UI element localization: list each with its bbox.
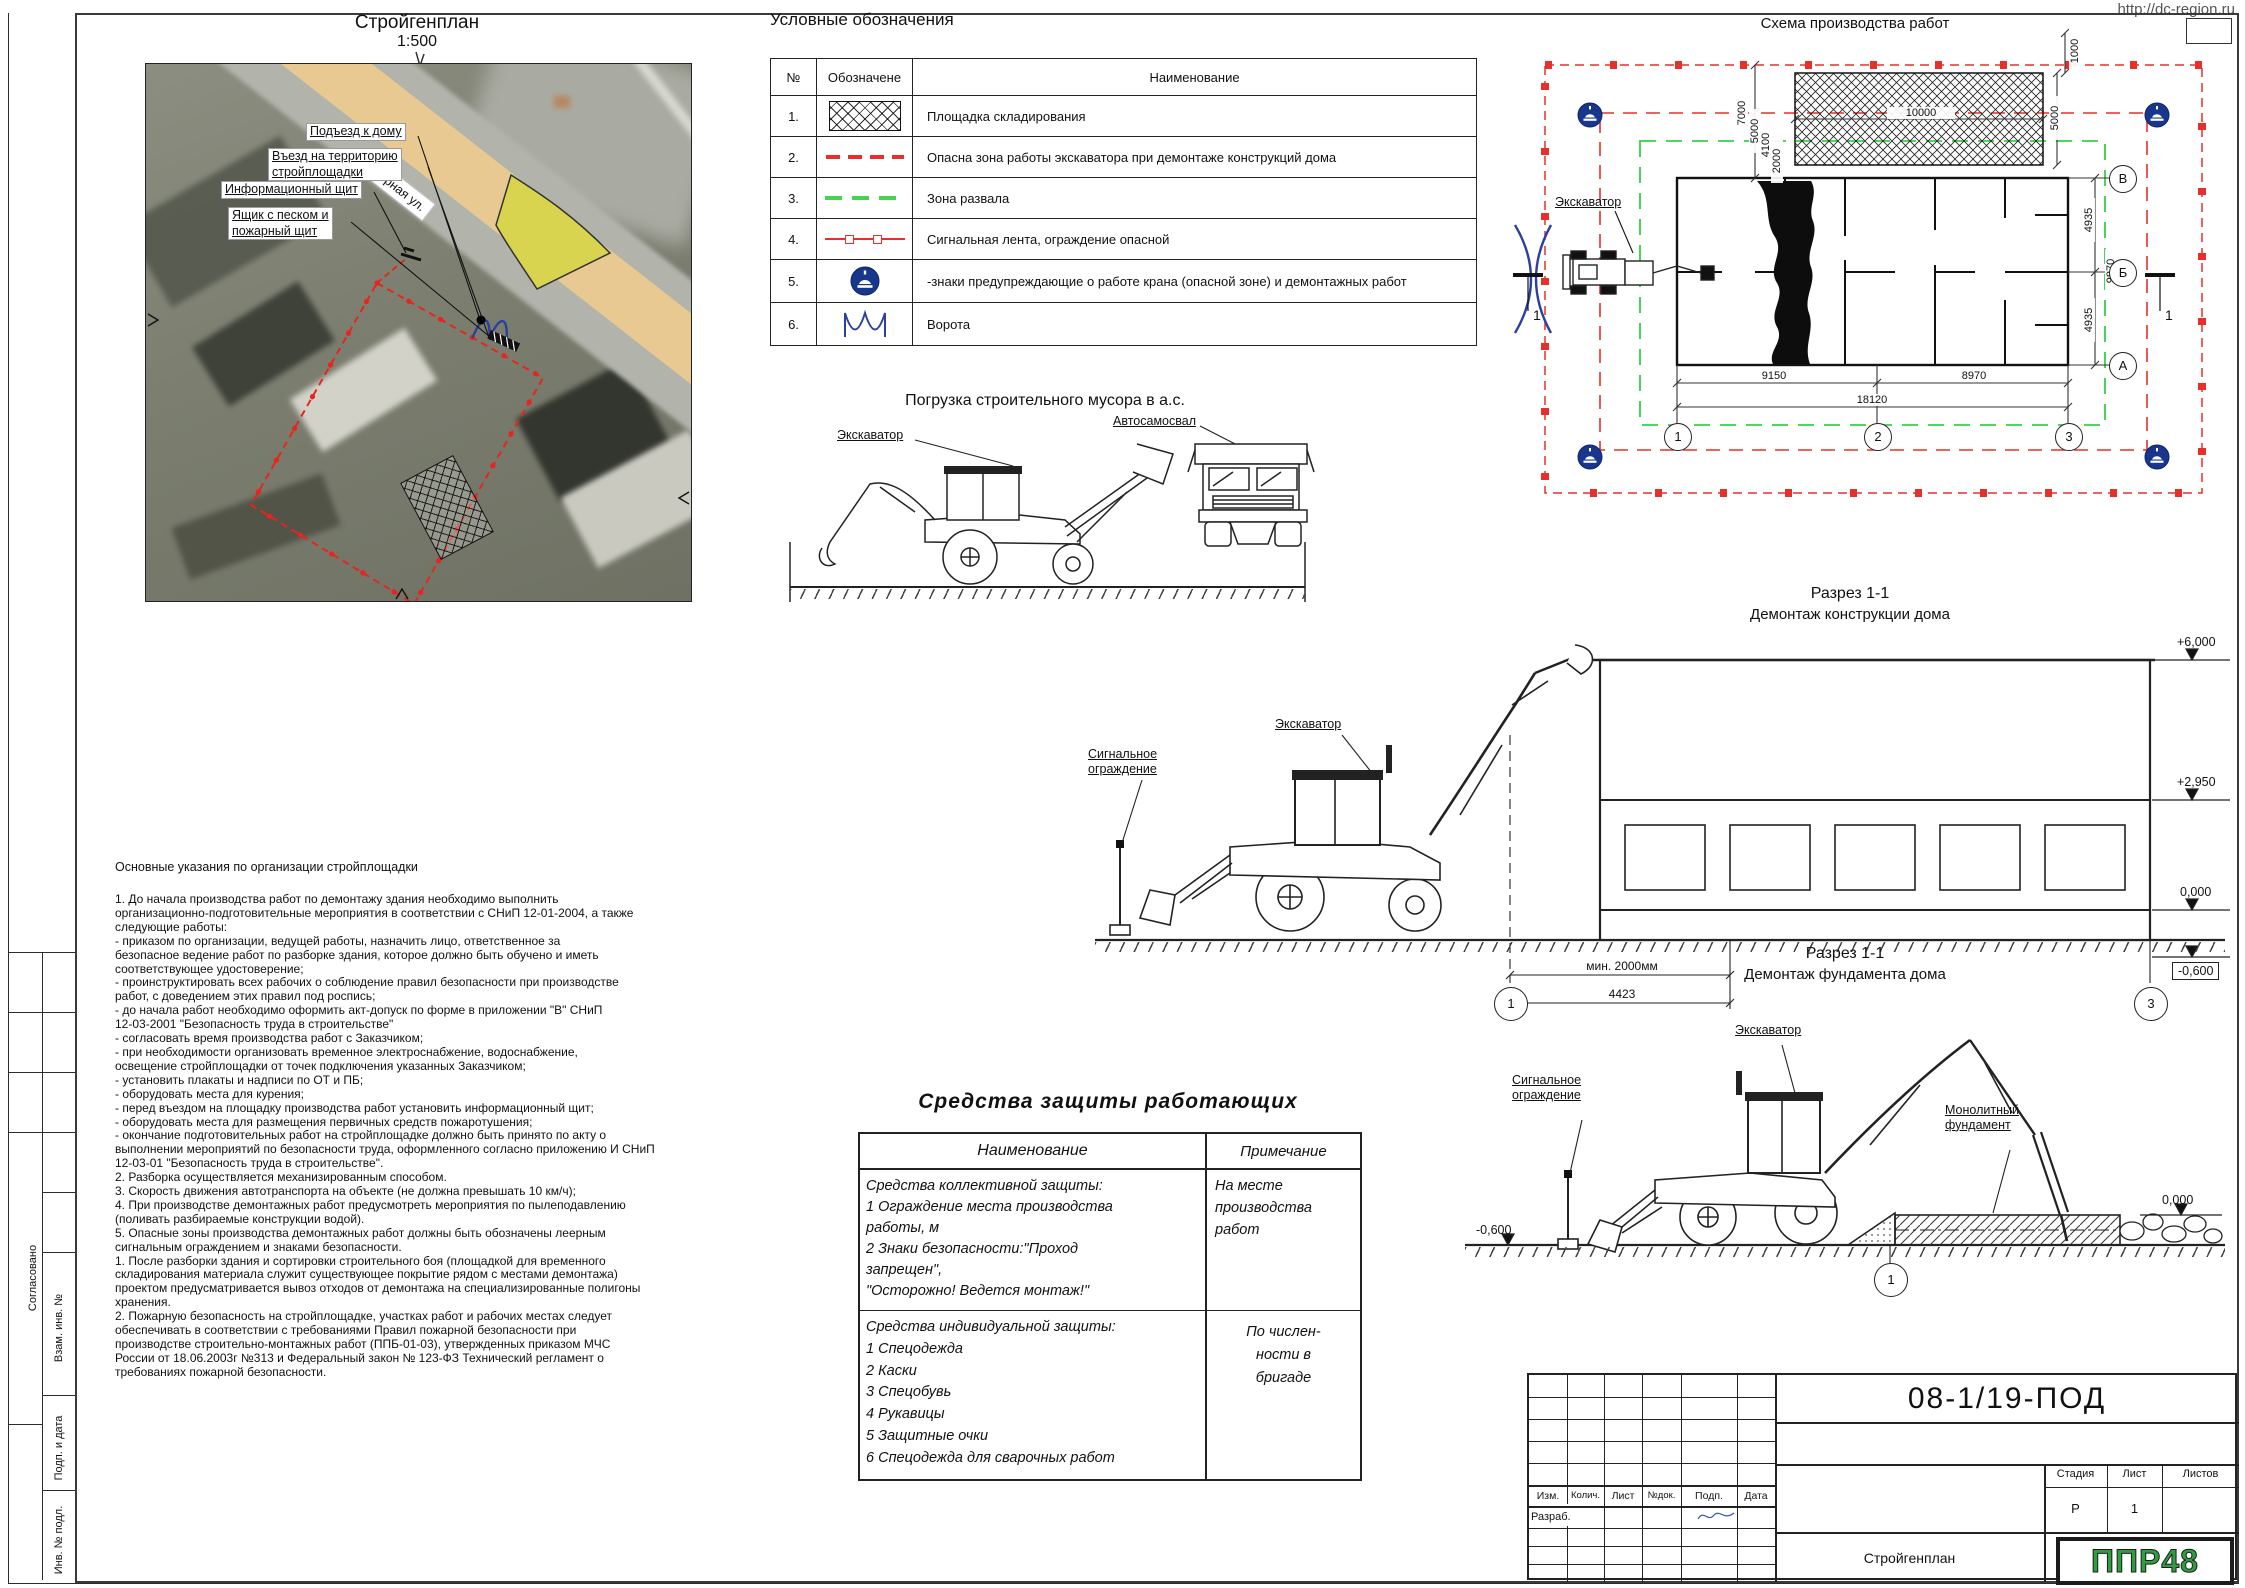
sec1-elev-2950: +2,950 <box>2177 775 2216 789</box>
sec2-axis-1: 1 <box>1874 1263 1908 1297</box>
sec2-elev-0: 0,000 <box>2162 1193 2193 1207</box>
loading-panel: Погрузка строительного мусора в а.с. Экс… <box>775 392 1320 612</box>
legend-col-symbol: Обозначене <box>816 59 912 95</box>
tb-izm: Изм. <box>1529 1490 1567 1502</box>
signal-tape-symbol <box>825 238 905 240</box>
tb-doc-number: 08-1/19-ПОД <box>1775 1381 2239 1416</box>
frame-label-approved: Согласовано <box>27 1228 39 1328</box>
sec2-fence-label: Сигнальное ограждение <box>1512 1073 1581 1103</box>
work-scheme-panel: Схема производства работ <box>1505 15 2240 525</box>
tb-podp: Подп. <box>1681 1490 1737 1502</box>
axis-bubble-1: 1 <box>1664 423 1692 451</box>
exit-area-yellow <box>496 175 610 289</box>
satellite-map: Озерная ул. <box>145 63 692 602</box>
callout-sandbox: Ящик с песком и пожарный щит <box>228 207 333 240</box>
legend-table: № Обозначене Наименование 1. Площадка ск… <box>770 58 1477 346</box>
tb-kol: Колич. <box>1567 1490 1604 1501</box>
sec1-elev-0: 0,000 <box>2180 885 2211 899</box>
ppe-table: Наименование Примечание Средства коллект… <box>858 1132 1362 1481</box>
legend-row-6: 6. Ворота <box>771 302 1476 345</box>
ppe-col-name: Наименование <box>860 1142 1205 1160</box>
section-mark-left: 1 <box>1533 307 1541 324</box>
sec1-fence-label: Сигнальное ограждение <box>1088 747 1157 777</box>
collapse-zone-symbol <box>825 196 905 200</box>
danger-zone-symbol <box>826 155 904 159</box>
tb-stadia: Стадия <box>2044 1468 2107 1480</box>
site-boundary-red <box>251 283 543 602</box>
sec1-axis-3: 3 <box>2134 987 2168 1021</box>
section2-panel: Разрез 1-1 Демонтаж фундамента дома <box>1450 945 2240 1315</box>
legend-col-num: № <box>771 59 816 95</box>
axis-bubble-2: 2 <box>1864 423 1892 451</box>
sec1-elev-6000: +6,000 <box>2177 635 2216 649</box>
legend-row-4: 4. Сигнальная лента, ограждение опасной <box>771 218 1476 259</box>
tb-stadia-value: Р <box>2044 1501 2107 1516</box>
section2-drawing <box>1450 945 2240 1315</box>
axis-bubble-a: А <box>2109 352 2137 380</box>
tb-list-value: 1 <box>2107 1501 2162 1516</box>
tb-doc-title: Стройгенплан <box>1775 1550 2044 1567</box>
frame-label-vzam: Взам. инв. № <box>53 1288 65 1368</box>
callout-driveway: Подъезд к дому <box>306 123 406 141</box>
axis-bubble-v: В <box>2109 165 2137 193</box>
company-logo: ППР48 <box>2056 1537 2234 1585</box>
warning-sign-symbol <box>849 265 881 297</box>
legend-row-1: 1. Площадка складирования <box>771 95 1476 136</box>
loading-drawing <box>775 392 1320 612</box>
notes-title: Основные указания по организации стройпл… <box>115 860 755 875</box>
outer-left-border <box>8 13 9 1583</box>
drawing-sheet: http://dc-region.ru А2 Согласовано Взам.… <box>0 0 2245 1588</box>
ppe-title: Средства защиты работающих <box>858 1090 1358 1115</box>
tb-list: Лист <box>1604 1490 1642 1502</box>
tb-listov: Листов <box>2162 1468 2239 1480</box>
gate-symbol <box>842 309 888 339</box>
ppe-row2-note: По числен- ности в бригаде <box>1205 1311 1360 1479</box>
frame-label-inv: Инв. № подл. <box>53 1500 65 1580</box>
callout-entrance: Въезд на территорию стройплощадки <box>268 148 402 181</box>
siteplan-scale: 1:500 <box>297 33 537 52</box>
siteplan-overlay <box>146 64 691 601</box>
outer-bottom-border <box>8 1583 2239 1584</box>
ppe-row2-name: Средства индивидуальной защиты: 1 Спецод… <box>860 1311 1205 1479</box>
ppe-row1-note: На месте производства работ <box>1205 1170 1360 1310</box>
sec2-excavator-label: Экскаватор <box>1735 1023 1801 1038</box>
axis-bubble-b: Б <box>2109 259 2137 287</box>
tb-data: Дата <box>1737 1490 1775 1502</box>
section-mark-right: 1 <box>2165 307 2173 324</box>
legend-col-name: Наименование <box>912 59 1476 95</box>
legend-row-3: 3. Зона развала <box>771 177 1476 218</box>
scheme-excavator-label: Экскаватор <box>1555 195 1621 210</box>
tb-razrab: Разраб. <box>1531 1511 1581 1523</box>
legend-row-2: 2. Опасна зона работы экскаватора при де… <box>771 136 1476 177</box>
ppe-row1-name: Средства коллективной защиты: 1 Огражден… <box>860 1170 1205 1310</box>
legend-title: Условные обозначения <box>770 10 1070 30</box>
axis-bubble-3: 3 <box>2055 423 2083 451</box>
sec1-excavator-label: Экскаватор <box>1275 717 1341 732</box>
frame-label-podp-data: Подп. и дата <box>53 1408 65 1488</box>
title-block: Изм. Колич. Лист №док. Подп. Дата Разраб… <box>1527 1373 2237 1580</box>
ppe-col-note: Примечание <box>1205 1134 1360 1168</box>
sec2-elev-m600: -0,600 <box>1476 1223 1511 1237</box>
tb-ndok: №док. <box>1642 1490 1681 1501</box>
callout-infoboard: Информационный щит <box>221 181 362 199</box>
frame-col-divider <box>42 952 43 1580</box>
sec1-axis-1: 1 <box>1494 987 1528 1021</box>
legend-row-5: 5. -знаки предупреждающие о работе крана… <box>771 259 1476 302</box>
sec2-foundation-label: Монолитный фундамент <box>1945 1103 2019 1133</box>
signature-scribble <box>1694 1507 1744 1525</box>
storage-symbol <box>829 101 901 131</box>
notes-body: 1. До начала производства работ по демон… <box>115 893 763 1380</box>
siteplan-title: Стройгенплан <box>297 12 537 34</box>
tb-list2: Лист <box>2107 1468 2162 1480</box>
